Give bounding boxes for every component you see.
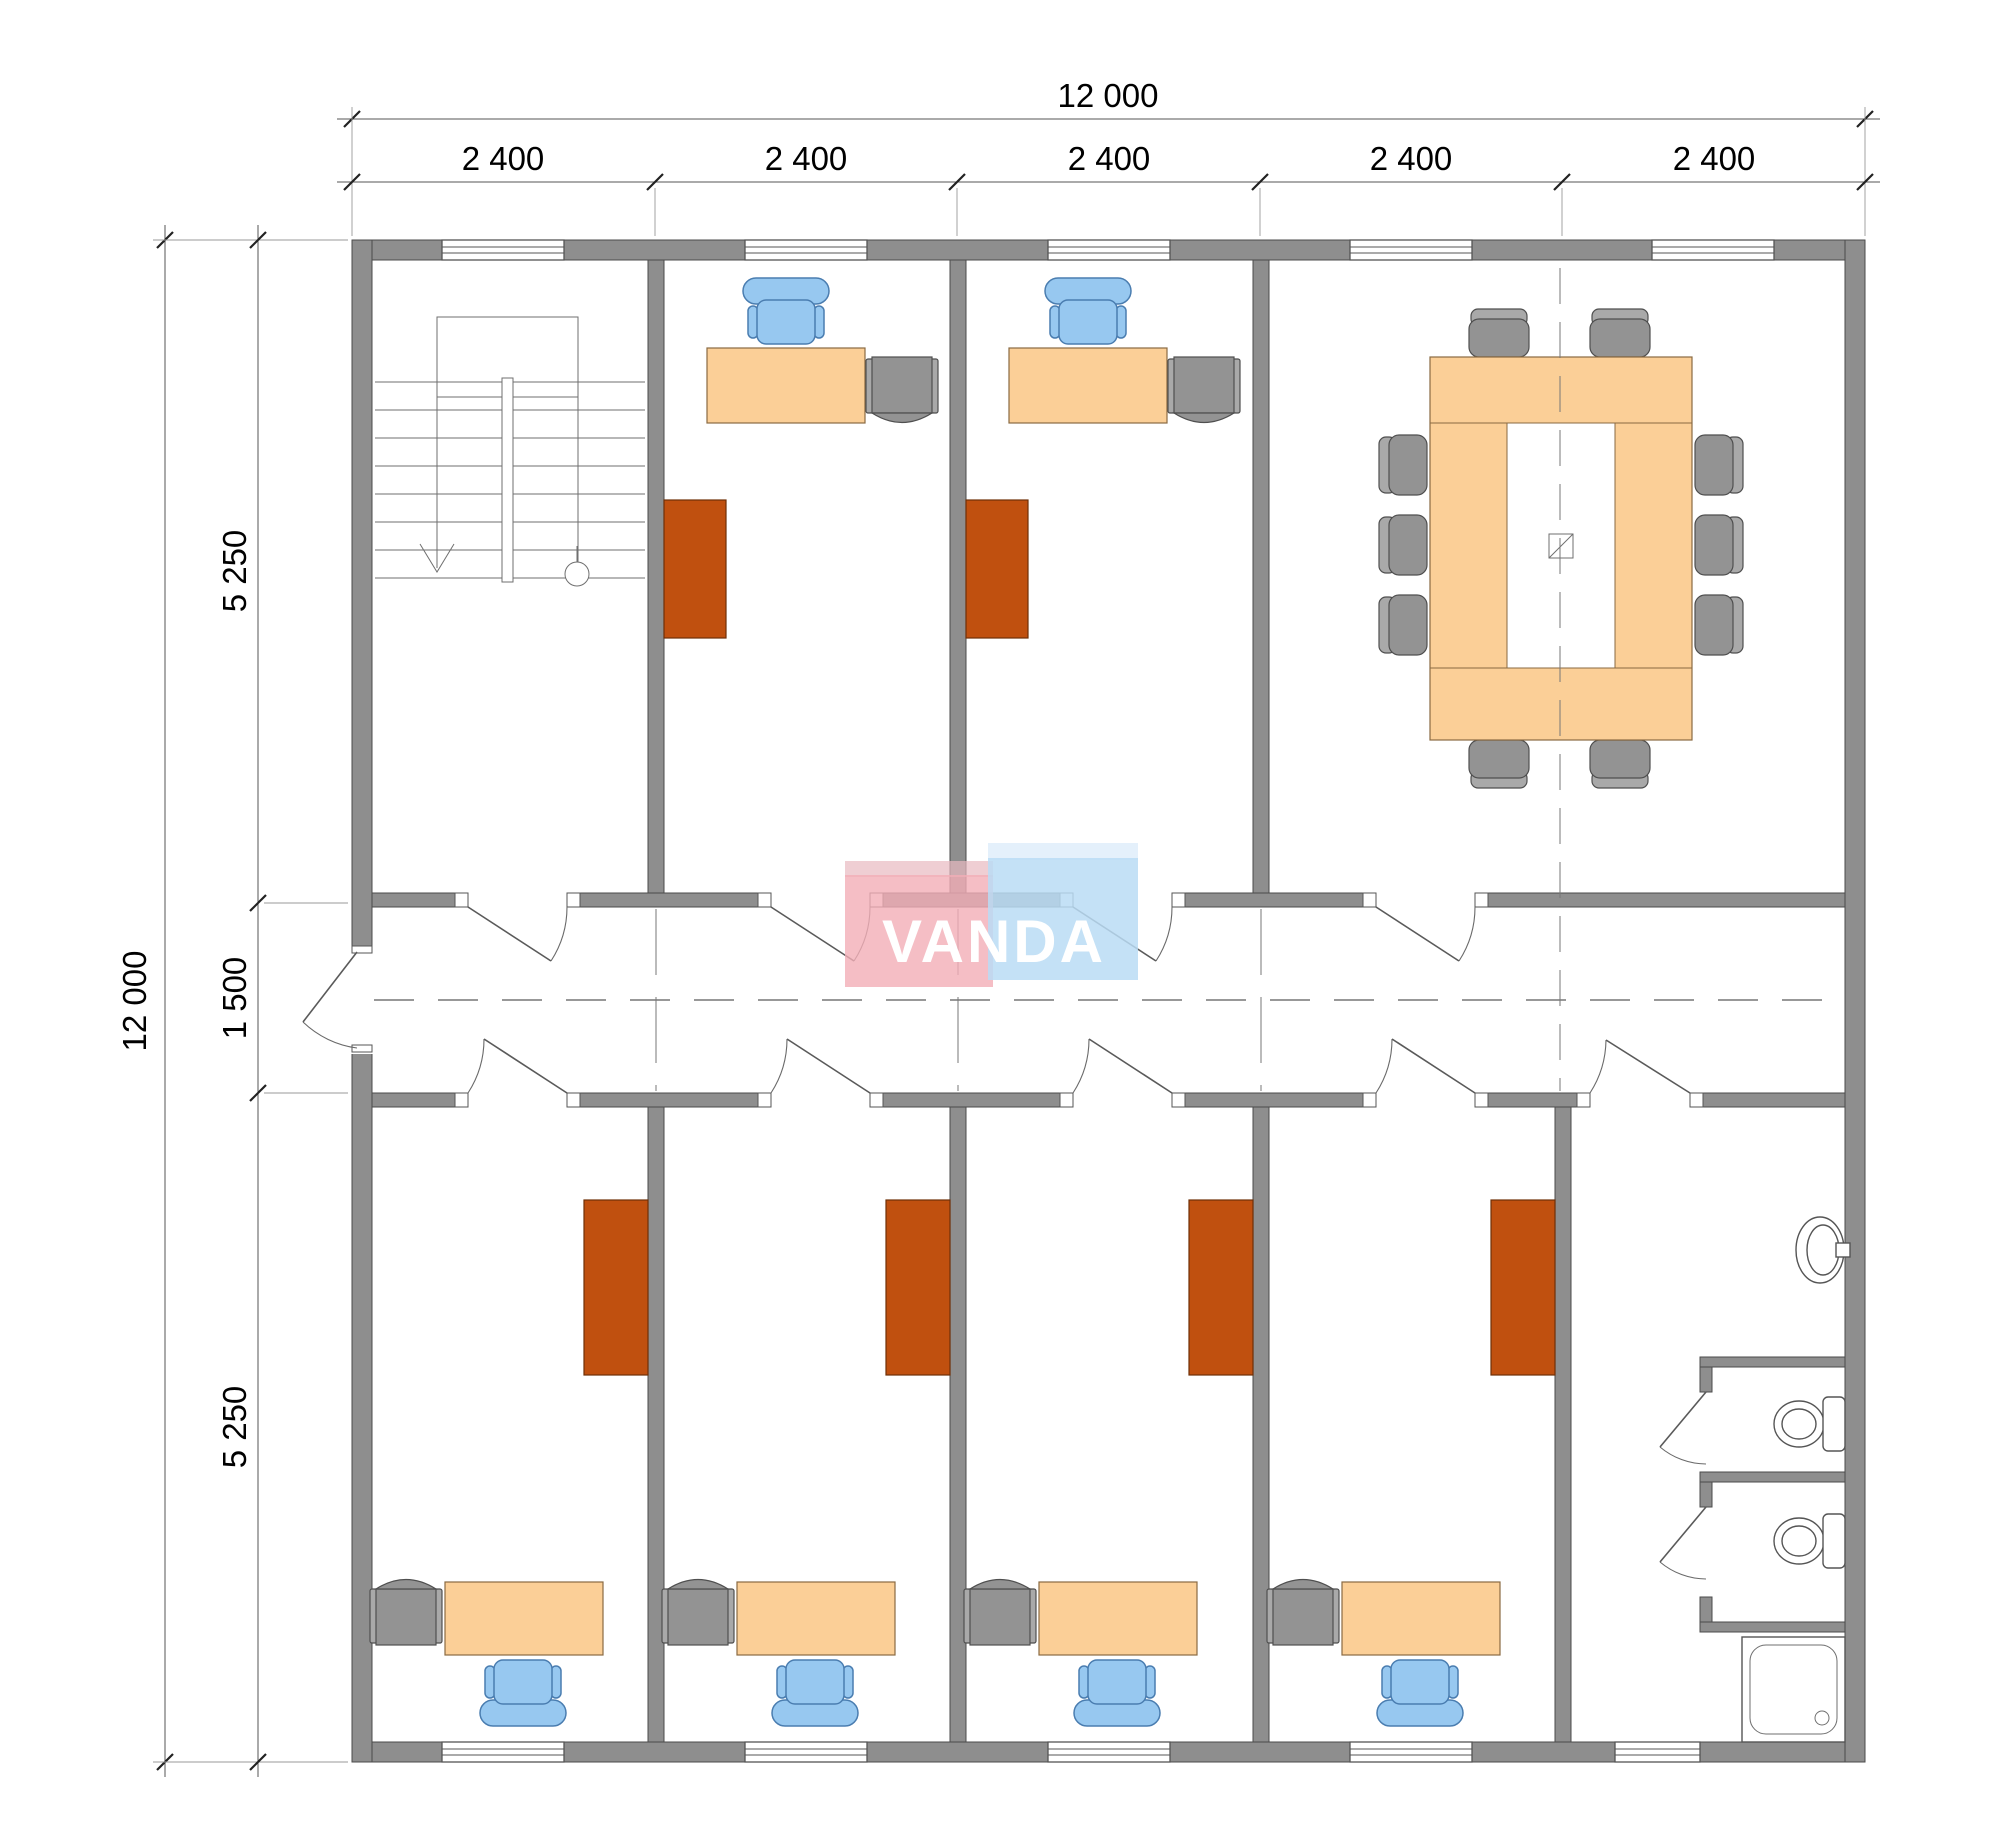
office-chair-icon xyxy=(1377,1660,1463,1726)
window-icon xyxy=(442,240,564,260)
partition xyxy=(950,260,966,893)
column-marker-icon xyxy=(1549,534,1573,558)
desk-icon xyxy=(737,1582,895,1655)
dim-label-overall-width: 12 000 xyxy=(1058,77,1159,114)
dim-label-segment: 5 250 xyxy=(216,530,253,613)
office-chair-icon xyxy=(772,1660,858,1726)
dim-label-bay: 2 400 xyxy=(1068,140,1151,177)
wardrobe-icon xyxy=(584,1200,648,1375)
pedestal-cabinet-icon xyxy=(662,1580,734,1646)
toilet-icon xyxy=(1774,1397,1845,1451)
office-chair-icon xyxy=(1074,1660,1160,1726)
desk-icon xyxy=(707,348,865,423)
stall-wall-stub xyxy=(1700,1367,1712,1392)
wardrobe-icon xyxy=(886,1200,950,1375)
stall-wall-stub xyxy=(1700,1482,1712,1507)
door-office-bottom-3 xyxy=(1060,1039,1185,1108)
meeting-chair-icon xyxy=(1590,309,1650,357)
stairs-icon xyxy=(375,317,645,586)
door-stall-2 xyxy=(1660,1507,1706,1579)
meeting-room-furniture xyxy=(1379,309,1743,788)
pedestal-cabinet-icon xyxy=(866,357,938,423)
door-office-bottom-4 xyxy=(1363,1039,1488,1108)
dim-label-segment: 5 250 xyxy=(216,1386,253,1469)
sink-icon xyxy=(1796,1217,1850,1283)
office-chair-icon xyxy=(1045,278,1131,344)
logo-text: VANDA xyxy=(882,908,1106,975)
pedestal-cabinet-icon xyxy=(1168,357,1240,423)
stall-wall-stub xyxy=(1700,1597,1712,1622)
pedestal-cabinet-icon xyxy=(1267,1580,1339,1646)
toilet-icon xyxy=(1774,1514,1845,1568)
pedestal-cabinet-icon xyxy=(370,1580,442,1646)
meeting-chair-icon xyxy=(1379,595,1427,655)
partition xyxy=(950,1107,966,1742)
wardrobe-icon xyxy=(1491,1200,1555,1375)
dim-label-bay: 2 400 xyxy=(1673,140,1756,177)
wardrobe-icon xyxy=(664,500,726,638)
stair-start-marker xyxy=(565,562,589,586)
window-icon xyxy=(1652,240,1774,260)
window-icon xyxy=(1615,1742,1700,1762)
vanda-logo: VANDA xyxy=(845,843,1138,987)
meeting-chair-icon xyxy=(1695,595,1743,655)
office-top-1-furniture xyxy=(664,278,938,638)
office-bottom-4-furniture xyxy=(1267,1200,1555,1726)
door-stall-1 xyxy=(1660,1392,1706,1464)
door-entrance xyxy=(303,946,373,1054)
desk-icon xyxy=(1009,348,1167,423)
door-meeting-room xyxy=(1363,892,1488,961)
dim-label-bay: 2 400 xyxy=(462,140,545,177)
window-icon xyxy=(1350,240,1472,260)
window-icon xyxy=(442,1742,564,1762)
logo-pink-top-face xyxy=(845,861,993,877)
pedestal-cabinet-icon xyxy=(964,1580,1036,1646)
door-bathroom xyxy=(1577,1040,1703,1108)
dim-label-bay: 2 400 xyxy=(765,140,848,177)
dim-label-segment: 1 500 xyxy=(216,957,253,1040)
dim-label-overall-height: 12 000 xyxy=(116,951,153,1052)
logo-blue-top-face xyxy=(988,843,1138,860)
partition xyxy=(648,260,664,893)
partition-bathroom xyxy=(1555,1107,1571,1742)
desk-icon xyxy=(445,1582,603,1655)
meeting-chair-icon xyxy=(1590,740,1650,788)
door-office-bottom-2 xyxy=(758,1039,883,1108)
wardrobe-icon xyxy=(966,500,1028,638)
door-stairwell xyxy=(455,892,580,961)
floor-plan-drawing: VANDA 12 000 2 400 2 400 2 400 2 400 2 4… xyxy=(0,0,2000,1848)
meeting-chair-icon xyxy=(1695,435,1743,495)
stall-wall xyxy=(1700,1472,1845,1482)
desk-icon xyxy=(1342,1582,1500,1655)
meeting-chair-icon xyxy=(1379,435,1427,495)
office-chair-icon xyxy=(480,1660,566,1726)
window-icon xyxy=(745,1742,867,1762)
partition xyxy=(648,1107,664,1742)
window-icon xyxy=(1048,1742,1170,1762)
stall-wall xyxy=(1700,1357,1845,1367)
outer-wall-right xyxy=(1845,240,1865,1762)
partition xyxy=(1253,1107,1269,1742)
meeting-chair-icon xyxy=(1695,515,1743,575)
meeting-chair-icon xyxy=(1469,740,1529,788)
office-chair-icon xyxy=(743,278,829,344)
floor-plan-page: VANDA 12 000 2 400 2 400 2 400 2 400 2 4… xyxy=(0,0,2000,1848)
office-bottom-1-furniture xyxy=(370,1200,648,1726)
office-top-2-furniture xyxy=(966,278,1240,638)
dim-label-bay: 2 400 xyxy=(1370,140,1453,177)
window-icon xyxy=(1048,240,1170,260)
office-bottom-3-furniture xyxy=(964,1200,1253,1726)
partition xyxy=(1253,260,1269,893)
desk-icon xyxy=(1039,1582,1197,1655)
shower-tray-icon xyxy=(1742,1637,1845,1742)
stall-wall xyxy=(1700,1622,1845,1632)
door-office-bottom-1 xyxy=(455,1039,580,1108)
meeting-chair-icon xyxy=(1469,309,1529,357)
office-bottom-2-furniture xyxy=(662,1200,950,1726)
window-icon xyxy=(745,240,867,260)
window-icon xyxy=(1350,1742,1472,1762)
meeting-chair-icon xyxy=(1379,515,1427,575)
wardrobe-icon xyxy=(1189,1200,1253,1375)
